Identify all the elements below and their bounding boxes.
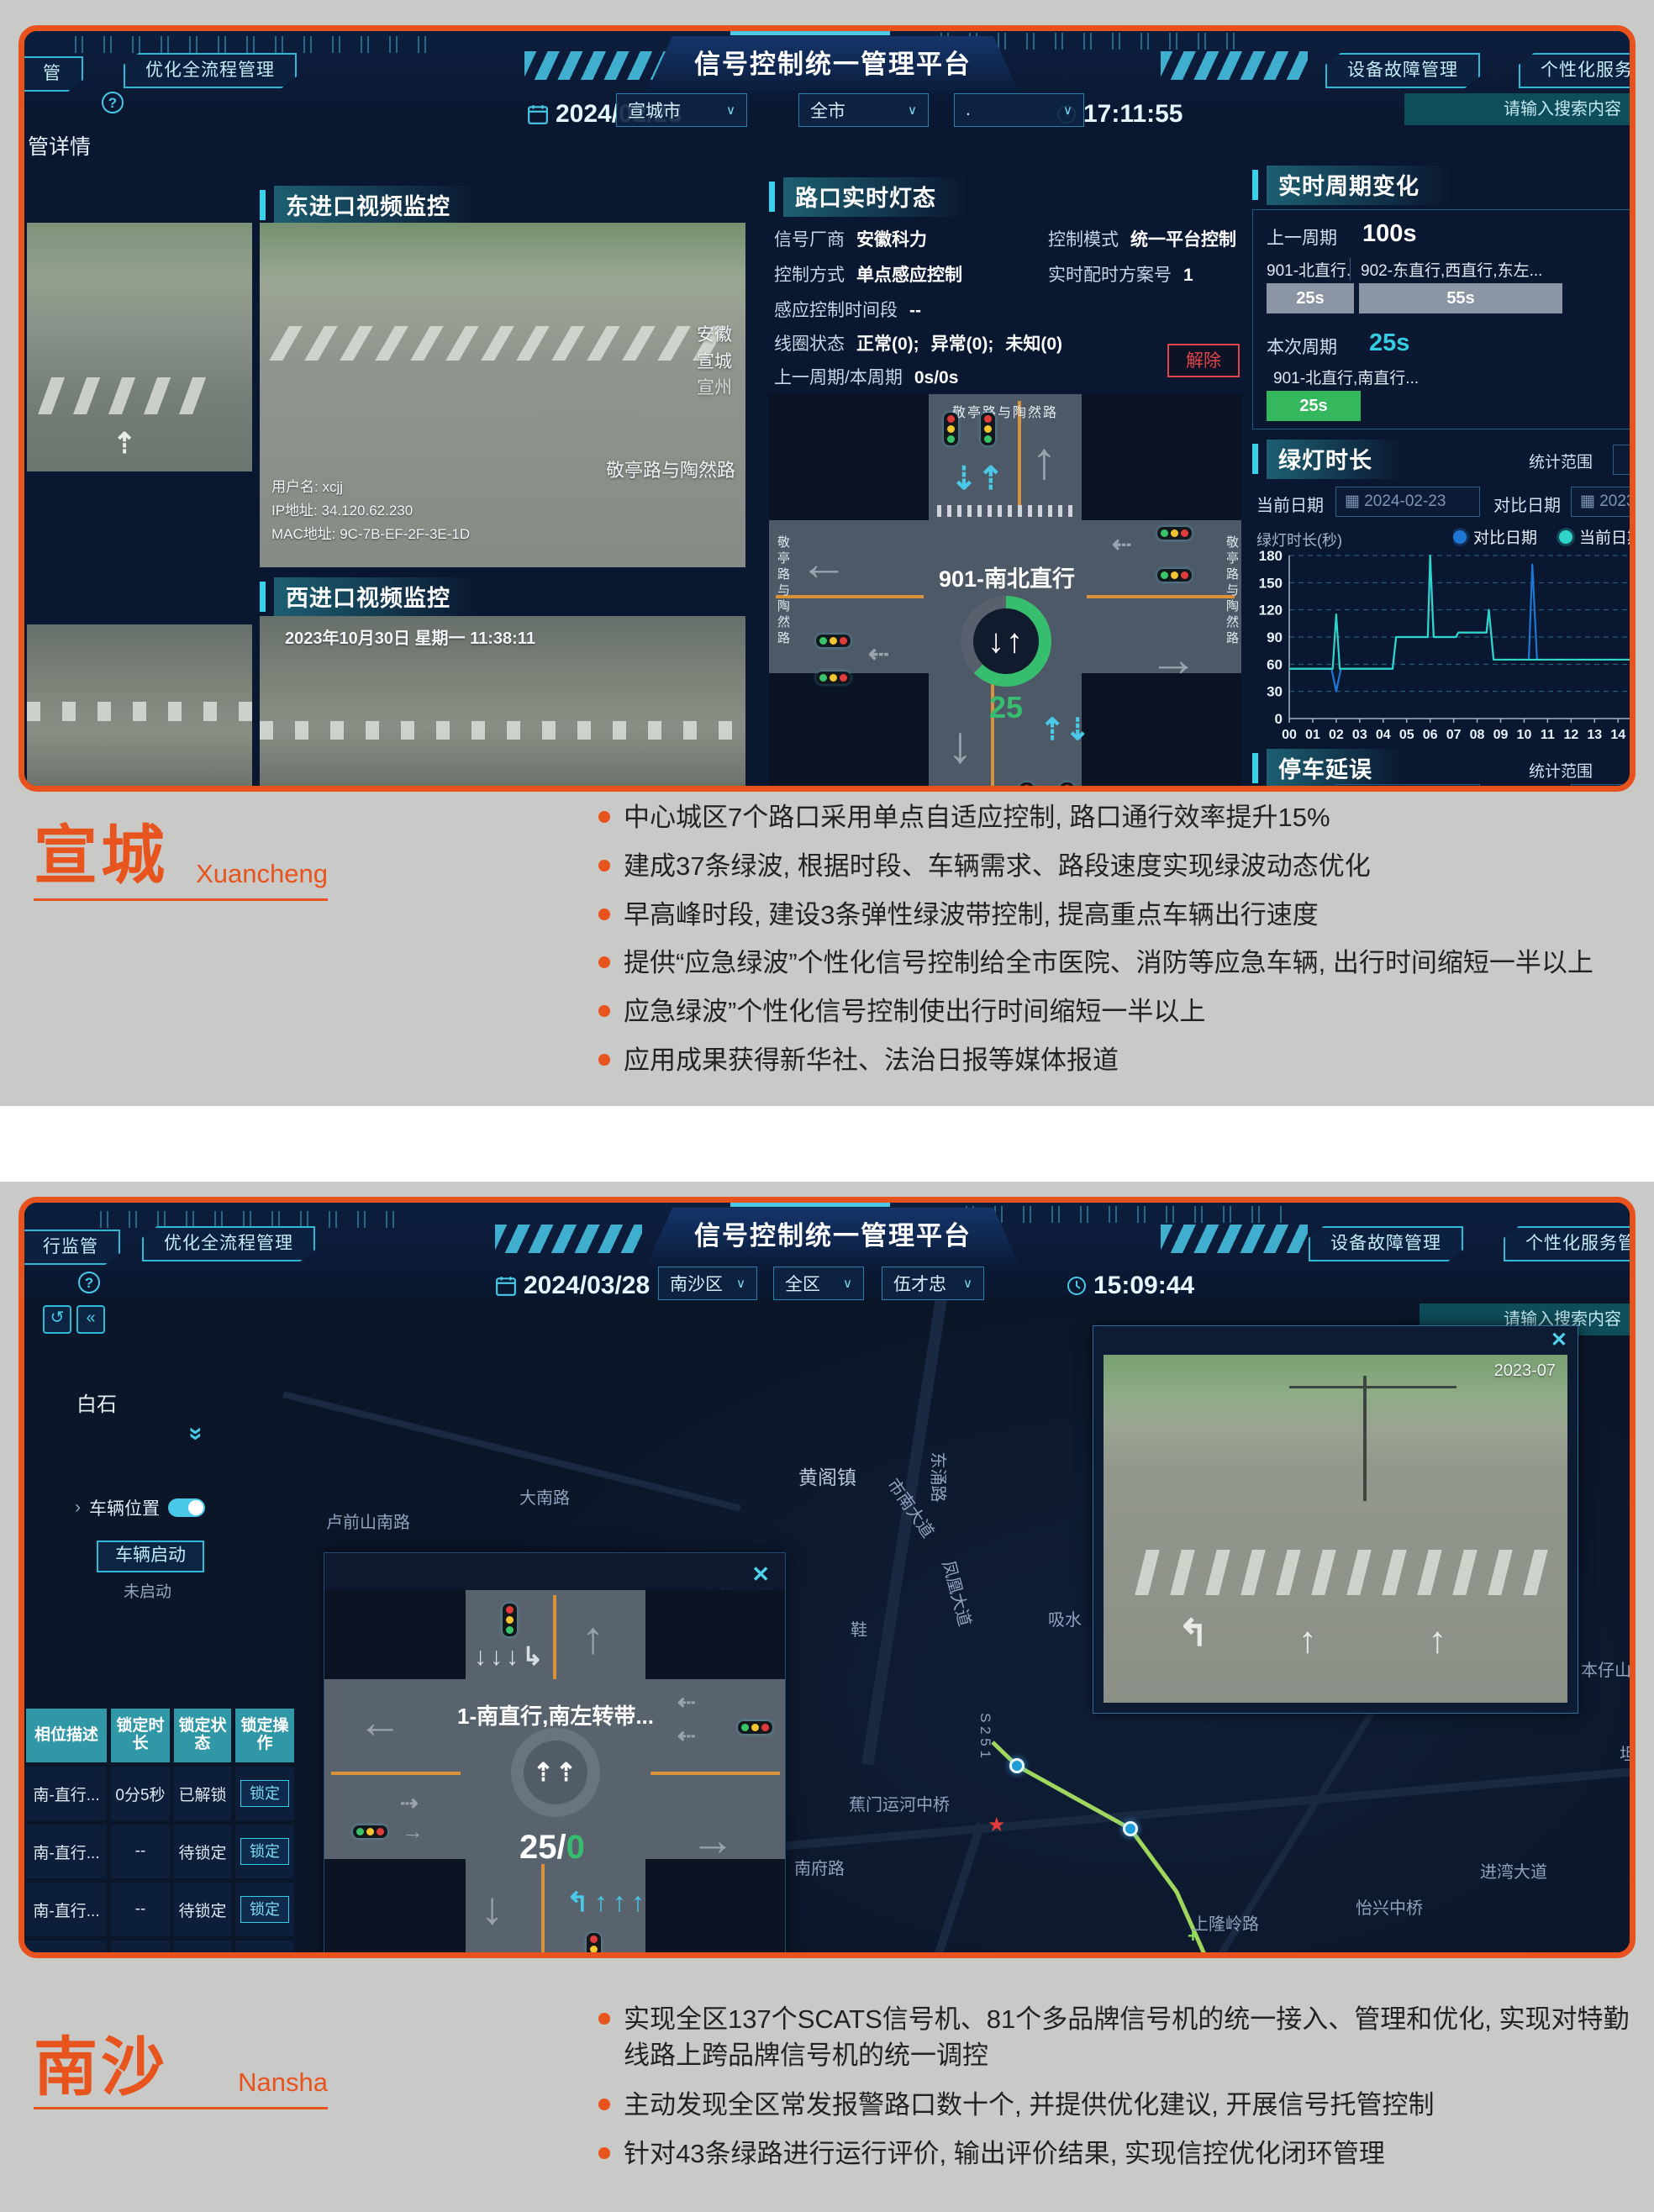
dashboard-header: 行监管 优化全流程管理 ? 信号控制统一管理平台 2024/03/28 15:0… [24, 1203, 1630, 1297]
map-label: 吸水 [1048, 1606, 1082, 1630]
bullet-item: 应用成果获得新华社、法治日报等媒体报道 [598, 1043, 1649, 1079]
compare-date-input[interactable]: ▦ 2023- [1571, 784, 1635, 792]
phase-segment-bar-active: 25s [1267, 391, 1361, 421]
video-feed-east[interactable]: 安徽 宣城 宣州 敬亭路与陶然路 用户名: xcjj IP地址: 34.120.… [260, 223, 745, 567]
nav-button-device-fault[interactable]: 设备故障管理 [1325, 53, 1480, 88]
countdown-value: 25 [981, 690, 1031, 725]
current-date-input[interactable]: ▦ 2024-02-23 [1335, 487, 1480, 517]
title-underline [34, 2107, 328, 2109]
crosswalk-marking [38, 377, 209, 414]
lane-arrows-cyan: ⇡⇣ [1040, 712, 1090, 747]
vehicle-start-button[interactable]: 车辆启动 [97, 1540, 204, 1572]
road-name-top: 敬亭路与陶然路 [952, 401, 1058, 421]
bullet-item: 中心城区7个路口采用单点自适应控制, 路口通行效率提升15% [598, 800, 1649, 836]
junction-diagram: 敬亭路与陶然路 敬亭路与陶然路 敬亭路与陶然路 ⇣⇡ ↑ ← ⇠ ⇠ → ↓ ⇡… [769, 394, 1241, 792]
title-accent-bar [730, 1203, 890, 1207]
stat-range-label: 统计范围 [1529, 450, 1593, 472]
video-overlay-mac: MAC地址: 9C-7B-EF-2F-3E-1D [271, 522, 470, 543]
panel-title: 停车延误 [1267, 749, 1411, 788]
phase-arrows: ↓↑ [973, 608, 1039, 674]
bullet-item: 早高峰时段, 建设3条弹性绿波带控制, 提高重点车辆出行速度 [598, 898, 1649, 934]
crosswalk-zebra [937, 505, 1073, 517]
bullet-item: 实现全区137个SCATS信号机、81个多品牌信号机的统一接入、管理和优化, 实… [598, 2002, 1647, 2074]
platform-title: 信号控制统一管理平台 [646, 36, 1019, 93]
table-cell-phase: 南-直行... [26, 1825, 107, 1878]
crosswalk-marking [1135, 1550, 1554, 1595]
breadcrumb-partial: 管详情 [28, 130, 91, 161]
panel-accent-bar [260, 582, 266, 612]
x-tick-label: 04 [1376, 728, 1391, 742]
compare-date-label: 对比日期 [1493, 789, 1561, 792]
nansha-bullets: 实现全区137个SCATS信号机、81个多品牌信号机的统一接入、管理和优化, 实… [598, 2002, 1647, 2172]
release-button[interactable]: 解除 [1167, 344, 1240, 377]
lock-button[interactable]: 锁定 [240, 1896, 289, 1923]
search-input[interactable]: 请输入搜索内容 [1404, 93, 1635, 125]
table-cell-op: 锁定 [235, 1825, 294, 1878]
area-dropdown-value: 全区 [785, 1271, 820, 1296]
phase-lock-table: 相位描述锁定时长锁定状态锁定操作南-直行...0分5秒已解锁锁定南-直行...-… [26, 1709, 288, 1958]
section-divider [0, 1106, 1654, 1182]
table-cell-dur: -- [111, 1883, 170, 1936]
table-header-cell: 锁定操作 [235, 1709, 294, 1762]
panel-accent-bar [1252, 753, 1258, 783]
caret-icon[interactable]: › [75, 1498, 81, 1518]
phase-ring: ⇡⇡ [511, 1728, 600, 1817]
header-time: 17:11:55 [1083, 100, 1183, 129]
section-title-en: Xuancheng [196, 859, 328, 889]
star-marker-icon: ★ [988, 1813, 1006, 1837]
x-tick-label: 14 [1610, 728, 1625, 742]
title-accent-bar [730, 31, 890, 35]
prev-cycle-value: 100s [1362, 220, 1417, 248]
compare-date-label: 对比日期 [1493, 492, 1561, 516]
table-cell-state: 待锁定 [174, 1941, 231, 1958]
map-label: 蕉门运河中桥 [849, 1791, 950, 1815]
map-label: 黄阁镇 [798, 1461, 856, 1490]
cur-cycle-value: 25s [1369, 329, 1409, 357]
vehicle-position-toggle-row: › 车辆位置 [75, 1495, 205, 1520]
table-cell-op: 锁定 [235, 1941, 294, 1958]
traffic-light-icon [503, 1604, 517, 1636]
bullet-icon [598, 811, 610, 823]
nav-button-process[interactable]: 优化全流程管理 [142, 1226, 315, 1261]
title-underline [34, 898, 328, 901]
decor-stripes [1161, 51, 1308, 80]
area-dropdown[interactable]: 全区∨ [773, 1267, 864, 1300]
cur-cycle-label: 本次周期 [1267, 334, 1337, 359]
decor-stripes [1161, 1224, 1308, 1253]
district-dropdown-value: 南沙区 [670, 1271, 723, 1296]
bullet-item: 建成37条绿波, 根据时段、车辆需求、路段速度实现绿波动态优化 [598, 849, 1649, 885]
map-label: 凤凰大道 [938, 1557, 979, 1629]
legend-compare: 对比日期 [1473, 525, 1537, 548]
traffic-light-icon [816, 671, 851, 684]
approach-arrow-up: ↑ [1031, 431, 1057, 491]
traffic-light-icon [1019, 782, 1034, 792]
x-tick-label: 07 [1446, 728, 1462, 742]
toggle-knob [188, 1500, 203, 1515]
stat-range-label: 统计范围 [1529, 759, 1593, 782]
chevron-down-icon: ∨ [1063, 103, 1072, 118]
legend-current: 当前日期 [1579, 525, 1636, 548]
traffic-light-icon [1060, 782, 1074, 792]
nav-button-personalized[interactable]: 个性化服务管理 [1504, 1226, 1636, 1261]
phase-segment-label: 901-北直行... [1267, 258, 1351, 281]
junction-popup: ✕ ↓↓↓↳ ↑ ← ⇢ [324, 1552, 786, 1957]
stat-range-box[interactable] [1613, 445, 1635, 475]
lock-button[interactable]: 锁定 [240, 1954, 289, 1958]
user-dropdown[interactable]: .∨ [954, 93, 1084, 127]
table-cell-state: 待锁定 [174, 1825, 231, 1878]
chevron-down-icon: ∨ [908, 103, 917, 118]
video-feed-left[interactable]: ⇡ [27, 223, 252, 471]
lane-arrows-gray: ⇠ [677, 1689, 696, 1715]
video-feed-left-bottom[interactable] [27, 624, 252, 792]
bullet-icon [598, 2147, 610, 2159]
camera-overlay-panel: ✕ 2023-07 ↰ ↑ ↑ [1093, 1325, 1578, 1714]
table-cell-dur: -- [111, 1825, 170, 1878]
bullet-icon [598, 908, 610, 920]
video-road-watermark: 敬亭路与陶然路 [606, 456, 735, 484]
decor-squares [75, 36, 428, 53]
calendar-icon [527, 103, 549, 125]
y-tick-label: 90 [1267, 629, 1283, 645]
nav-button-partial[interactable]: 行监管 [18, 1230, 120, 1265]
video-overlay-user: 用户名: xcjj [271, 475, 343, 496]
prev-cycle-label: 上一周期 [1267, 224, 1337, 250]
dashboard-xuancheng: 管 优化全流程管理 ? 信号控制统一管理平台 2024/02/23 17:11:… [18, 25, 1636, 792]
current-date-label: 当前日期 [1256, 789, 1324, 792]
y-tick-label: 30 [1267, 684, 1283, 700]
lane-arrow: ↰ [1177, 1612, 1209, 1655]
countdown-value: 25/0 [519, 1829, 585, 1867]
map-label: 进湾大道 [1480, 1858, 1547, 1883]
lock-button[interactable]: 锁定 [240, 1780, 289, 1807]
lane-arrow: ↑ [1298, 1619, 1317, 1662]
current-date-label: 当前日期 [1256, 492, 1324, 516]
back-button[interactable]: ↺ [43, 1305, 71, 1334]
panel-title: 路口实时灯态 [783, 177, 975, 217]
lane-arrow: ↑ [1428, 1619, 1446, 1662]
table-header-cell: 相位描述 [26, 1709, 107, 1762]
route-node-icon[interactable] [1123, 1821, 1138, 1836]
city-dropdown[interactable]: 宣城市∨ [616, 93, 747, 127]
traffic-light-icon [353, 1825, 387, 1838]
phase-segment-label: 902-东直行,西直行,东左... [1361, 258, 1562, 281]
approach-arrow-right: → [691, 1815, 735, 1866]
vehicle-position-toggle[interactable] [168, 1498, 205, 1517]
panel-title: 西进口视频监控 [274, 577, 489, 617]
lane-arrows-down: ↓↓↓↳ [474, 1642, 546, 1672]
traffic-light-icon [587, 1933, 601, 1957]
phase-countdown-ring: ↓↑ [961, 596, 1051, 687]
help-icon[interactable]: ? [78, 1272, 100, 1293]
decor-squares [966, 1206, 1285, 1223]
xuancheng-bullets: 中心城区7个路口采用单点自适应控制, 路口通行效率提升15% 建成37条绿波, … [598, 800, 1649, 1079]
decor-stripes [495, 1224, 642, 1253]
bullet-icon [598, 2013, 610, 2025]
panel-title: 绿灯时长 [1267, 440, 1411, 479]
approach-arrow-right: → [1149, 631, 1198, 687]
nav-button-process[interactable]: 优化全流程管理 [124, 53, 297, 88]
camera-date-watermark: 2023-07 [1494, 1361, 1556, 1381]
current-date-input[interactable]: ▦ 2024-02-23 [1335, 784, 1480, 792]
y-tick-label: 180 [1259, 548, 1283, 564]
y-tick-label: 150 [1259, 575, 1283, 591]
table-cell-phase: 北-直行... [26, 1941, 107, 1958]
video-overlay-ip: IP地址: 34.120.62.230 [271, 498, 413, 519]
chart-series-当前日期 [1289, 556, 1632, 669]
table-cell-state: 待锁定 [174, 1883, 231, 1936]
expand-chevrons-icon[interactable]: » [182, 1427, 210, 1441]
map-label: 怡兴中桥 [1356, 1894, 1423, 1919]
user-dropdown-value: . [966, 100, 971, 120]
video-location-watermark: 安徽 宣城 宣州 [697, 322, 732, 402]
bullet-icon [598, 860, 610, 872]
lane-arrows-cyan: ⇣⇡ [951, 460, 1004, 498]
lane-arrows-gray: → [402, 1819, 424, 1845]
signal-gantry [1289, 1386, 1456, 1388]
map-road [282, 1391, 740, 1511]
dashboard-header: 管 优化全流程管理 ? 信号控制统一管理平台 2024/02/23 17:11:… [24, 31, 1630, 125]
y-tick-label: 120 [1259, 603, 1283, 619]
chevron-down-icon: ∨ [963, 1276, 972, 1291]
page: 管 优化全流程管理 ? 信号控制统一管理平台 2024/02/23 17:11:… [0, 0, 1654, 2212]
panel-title: 实时周期变化 [1267, 166, 1458, 205]
x-tick-label: 13 [1587, 728, 1602, 742]
district-dropdown[interactable]: 南沙区∨ [658, 1267, 757, 1300]
traffic-light-icon [944, 413, 958, 445]
area-dropdown[interactable]: 全市∨ [798, 93, 929, 127]
close-icon[interactable]: ✕ [751, 1562, 770, 1588]
map-label: 上隆岭路 [1192, 1910, 1259, 1935]
phase-label: 1-南直行,南左转带... [434, 1699, 677, 1730]
chevron-down-icon: ∨ [726, 103, 735, 118]
x-tick-label: 05 [1399, 728, 1414, 742]
approach-arrow-up: ↑ [582, 1612, 604, 1664]
area-dropdown-value: 全市 [810, 97, 845, 123]
bullet-item: 针对43条绿路进行运行评价, 输出评价结果, 实现信控优化闭环管理 [598, 2136, 1647, 2172]
nav-button-device-fault[interactable]: 设备故障管理 [1309, 1226, 1463, 1261]
panel-accent-bar [1252, 170, 1258, 200]
approach-arrow-down: ↓ [481, 1883, 503, 1935]
platform-title: 信号控制统一管理平台 [646, 1208, 1019, 1265]
decor-stripes [524, 51, 672, 80]
header-date: 2024/03/28 [524, 1272, 650, 1300]
clock-icon [1067, 1276, 1087, 1296]
lane-arrows-gray: ⇢ [400, 1790, 419, 1816]
y-tick-label: 60 [1267, 656, 1283, 672]
phase-segment-bar: 55s [1359, 283, 1562, 313]
section-title-xuancheng: 宣城 Xuancheng [34, 803, 328, 901]
map-label: S 2 5 1 [977, 1713, 993, 1758]
traffic-light-icon [816, 635, 851, 647]
traffic-light-icon [981, 413, 995, 445]
section-title-en: Nansha [238, 2067, 328, 2098]
approach-arrow-left: ← [799, 535, 848, 592]
video-timestamp: 2023年10月30日 星期一 11:38:11 [285, 624, 535, 649]
user-dropdown-value: 伍才忠 [893, 1271, 946, 1296]
map-label: 大南路 [519, 1484, 570, 1509]
table-cell-dur: -- [111, 1941, 170, 1958]
vehicle-position-label: 车辆位置 [89, 1495, 160, 1520]
phase-label: 901-南北直行 [910, 561, 1104, 593]
decor-squares [100, 1211, 403, 1228]
panel-accent-bar [769, 182, 775, 212]
signal-pole [1363, 1376, 1367, 1501]
map-road [904, 1822, 985, 1958]
x-tick-label: 12 [1563, 728, 1578, 742]
dashboard-nansha: ★ + + 白石黄阁镇大南路卢前山南路东涌路市南大道大井山塘凤凰大道吸水鞋日本仔… [18, 1197, 1636, 1958]
x-tick-label: 11 [1541, 728, 1555, 742]
bullet-item: 提供“应急绿波”个性化信号控制给全市医院、消防等应急车辆, 出行时间缩短一半以上 [598, 945, 1649, 982]
user-dropdown[interactable]: 伍才忠∨ [882, 1267, 984, 1300]
vehicle-start-status: 未启动 [124, 1579, 171, 1602]
traffic-light-icon [1157, 569, 1192, 582]
crosswalk-marking [27, 702, 252, 721]
map-label: 卢前山南路 [326, 1509, 410, 1533]
nav-button-personalized[interactable]: 个性化服务管理 [1519, 53, 1636, 88]
road-name-left: 敬亭路与陶然路 [774, 535, 792, 647]
y-tick-label: 0 [1275, 711, 1283, 727]
bullet-icon [598, 1005, 610, 1017]
x-tick-label: 08 [1470, 728, 1485, 742]
x-tick-label: 03 [1352, 728, 1367, 742]
x-tick-label: 01 [1305, 728, 1320, 742]
x-tick-label: 02 [1329, 728, 1344, 742]
lane-arrows-cyan: ↰↑↑↑ [566, 1886, 650, 1918]
nav-button-partial[interactable]: 管 [18, 56, 83, 92]
lane-arrows-gray: ⇠ [868, 640, 889, 669]
legend-dot-current [1559, 530, 1572, 544]
green-duration-chart: 0306090120150180000102030405060708091011… [1252, 547, 1636, 745]
bullet-icon [598, 1054, 610, 1066]
chevron-down-icon: ∨ [736, 1276, 745, 1291]
approach-arrow-left: ← [358, 1698, 402, 1748]
x-tick-label: 06 [1423, 728, 1438, 742]
crosswalk-marking [260, 721, 745, 740]
x-tick-label: 09 [1493, 728, 1509, 742]
map-label: 东涌路 [928, 1452, 952, 1503]
header-time: 15:09:44 [1093, 1272, 1194, 1300]
table-cell-phase: 南-直行... [26, 1883, 107, 1936]
collapse-button[interactable]: « [76, 1305, 105, 1334]
table-cell-state: 已解锁 [174, 1767, 231, 1820]
compare-date-input[interactable]: ▦ 2023- [1571, 487, 1635, 517]
table-header-cell: 锁定状态 [174, 1709, 231, 1762]
table-cell-phase: 南-直行... [26, 1767, 107, 1820]
x-tick-label: 00 [1282, 728, 1297, 742]
table-cell-op: 锁定 [235, 1883, 294, 1936]
section-title-nansha: 南沙 Nansha [34, 2015, 328, 2109]
road-name-right: 敬亭路与陶然路 [1223, 535, 1240, 647]
lock-button[interactable]: 锁定 [240, 1838, 289, 1865]
lane-arrows-gray: ⇠ [677, 1723, 696, 1749]
help-icon[interactable]: ? [102, 92, 124, 113]
route-node-icon[interactable] [1009, 1758, 1025, 1773]
map-label: 白石 [76, 1388, 117, 1417]
camera-photo[interactable]: 2023-07 ↰ ↑ ↑ [1104, 1355, 1567, 1703]
map-label: 坦 [1620, 1741, 1636, 1765]
calendar-icon [495, 1275, 517, 1297]
x-tick-label: 10 [1517, 728, 1532, 742]
traffic-light-icon [1157, 527, 1192, 540]
crosswalk-marking [269, 326, 735, 361]
map-label: 鞋 [851, 1616, 867, 1641]
map-label: 双山大道 [1068, 1957, 1135, 1958]
panel-title: 东进口视频监控 [274, 186, 489, 225]
legend-dot-compare [1453, 530, 1467, 544]
bullet-icon [598, 956, 610, 968]
chevron-down-icon: ∨ [843, 1276, 852, 1291]
table-cell-dur: 0分5秒 [111, 1767, 170, 1820]
city-dropdown-value: 宣城市 [628, 97, 681, 123]
approach-arrow-down: ↓ [947, 715, 973, 775]
phase-segment-bar: 25s [1267, 283, 1354, 313]
lane-arrow: ⇡ [113, 427, 137, 461]
table-header-cell: 锁定时长 [111, 1709, 170, 1762]
bullet-icon [598, 2099, 610, 2110]
bullet-item: 主动发现全区常发报警路口数十个, 并提供优化建议, 开展信号托管控制 [598, 2088, 1647, 2124]
lane-arrows-gray: ⇠ [1112, 530, 1131, 558]
chart-series-对比日期 [1289, 560, 1632, 691]
video-feed-west[interactable]: 2023年10月30日 星期一 11:38:11 [260, 616, 745, 792]
panel-accent-bar [1252, 444, 1258, 474]
bullet-item: 应急绿波”个性化信号控制使出行时间缩短一半以上 [598, 994, 1649, 1030]
close-icon[interactable]: ✕ [1551, 1328, 1567, 1352]
traffic-light-icon [738, 1721, 772, 1734]
phase-segment-label: 901-北直行,南直行... [1273, 366, 1525, 388]
panel-accent-bar [260, 190, 266, 220]
map-label: 南府路 [794, 1855, 845, 1879]
table-cell-op: 锁定 [235, 1767, 294, 1820]
